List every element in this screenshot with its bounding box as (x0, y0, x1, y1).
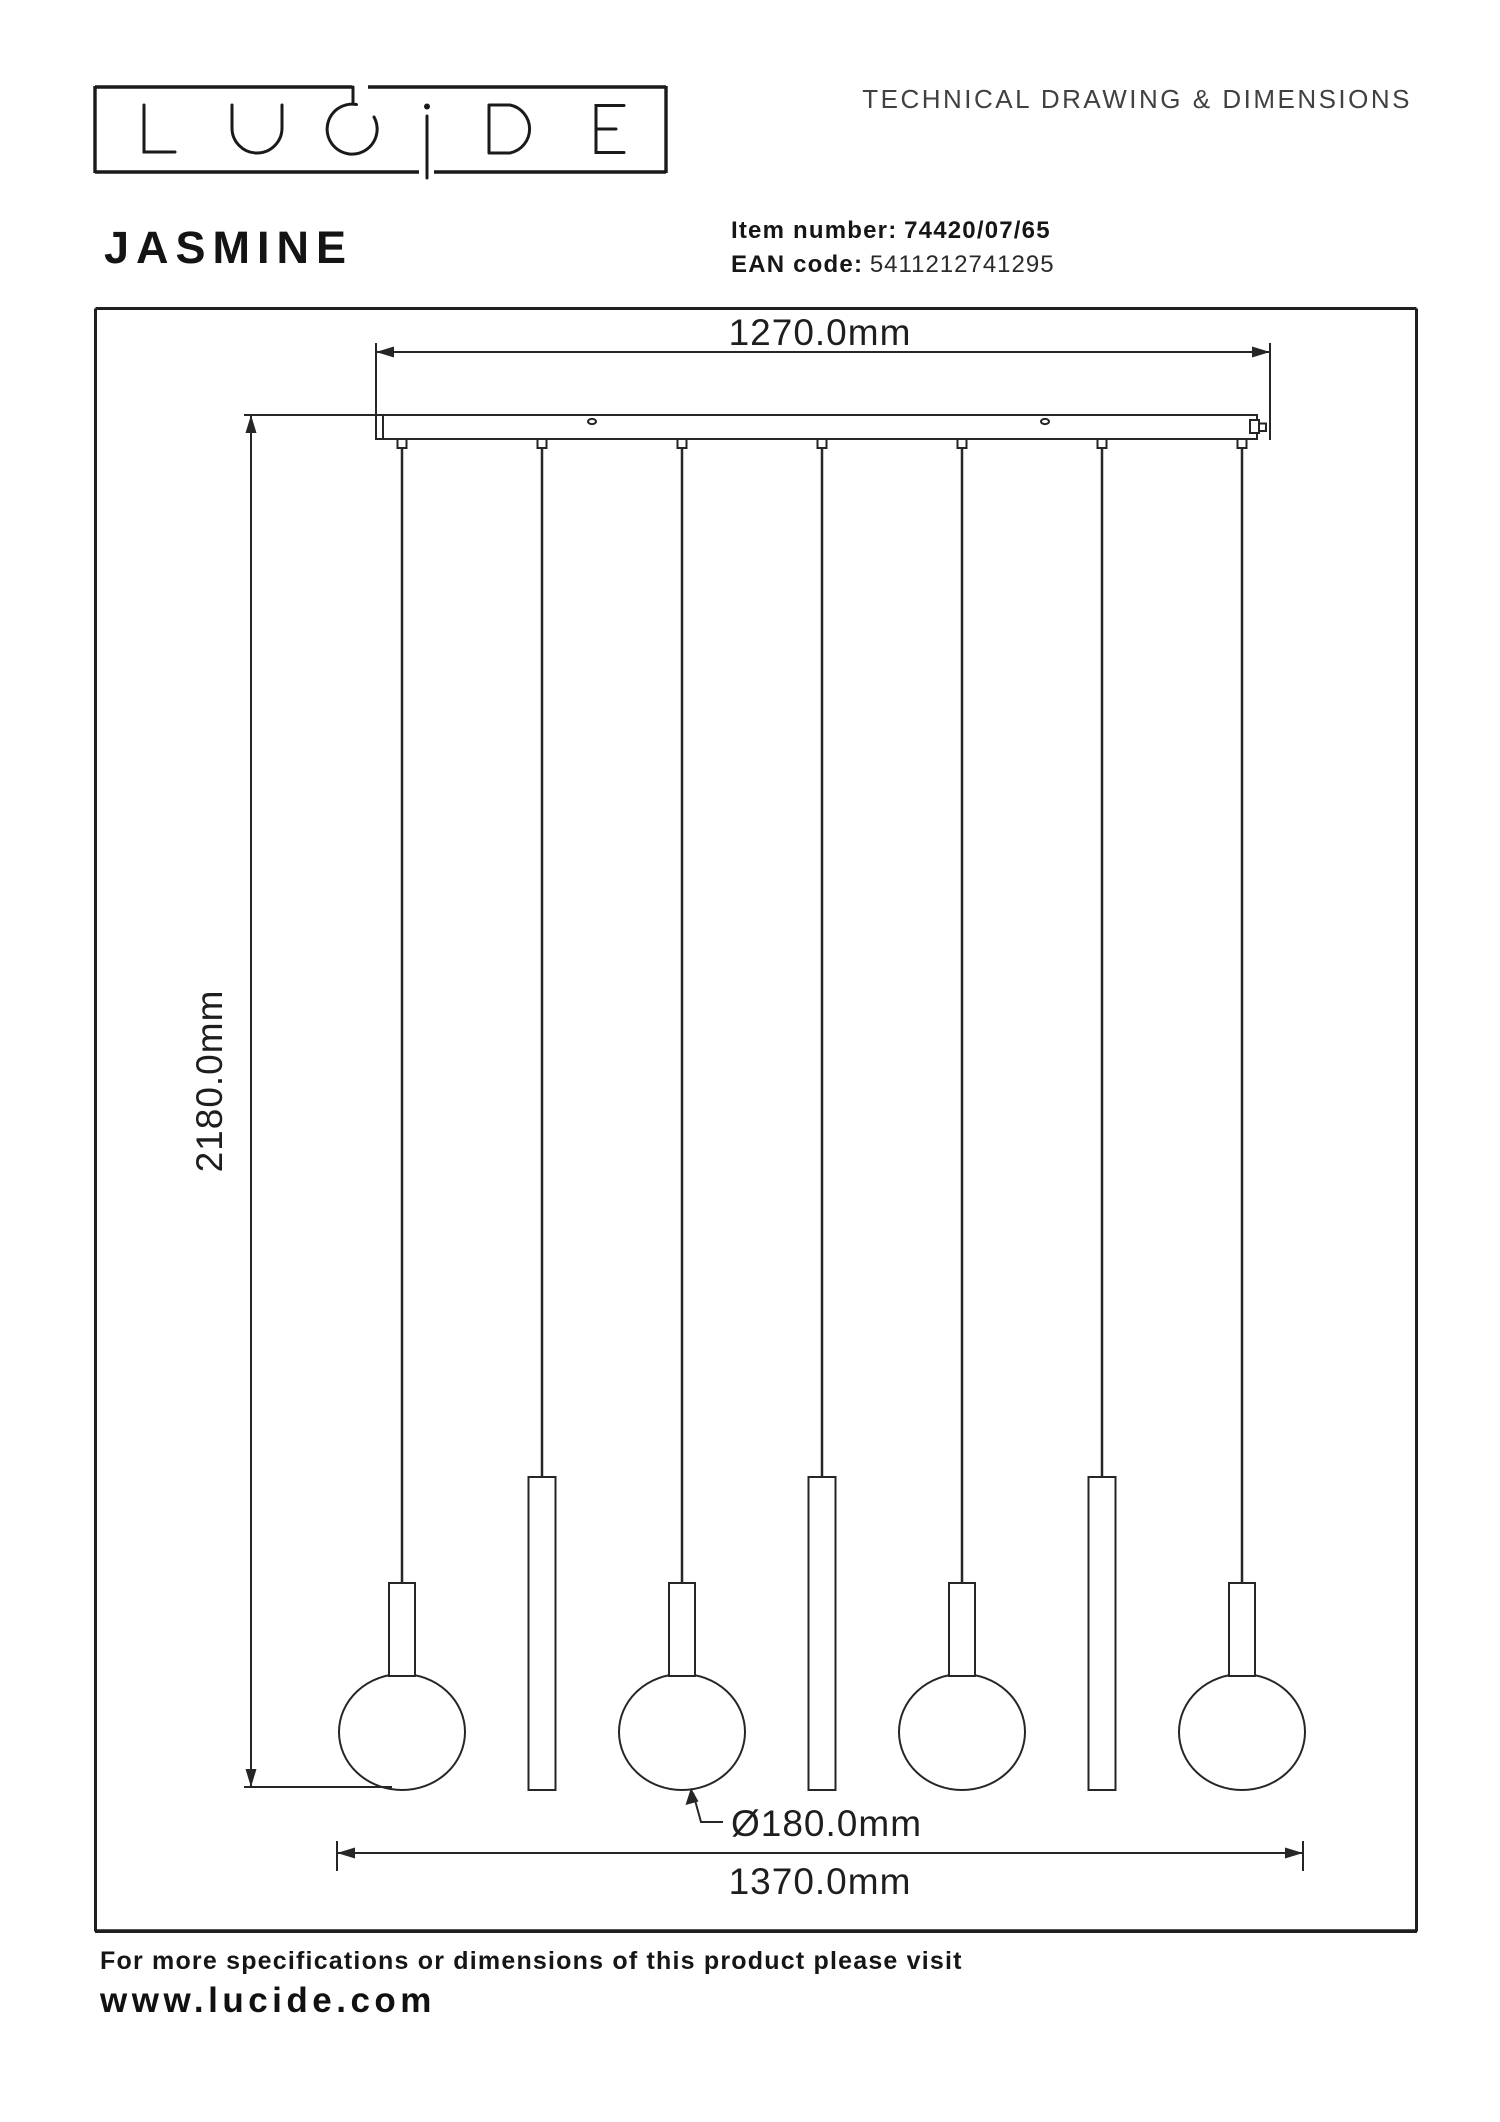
cord-connector (818, 439, 827, 448)
arrow-right-icon (1285, 1848, 1303, 1859)
globe-shade (899, 1674, 1025, 1790)
arrow-left-icon (337, 1848, 355, 1859)
technical-drawing: 1270.0mm 2180.0mm Ø180.0mm (94, 307, 1418, 1933)
globe-shade (1179, 1674, 1305, 1790)
logo-letters (144, 87, 624, 178)
socket-cylinder (669, 1583, 695, 1676)
pendant-ball (899, 439, 1025, 1790)
socket-cylinder (389, 1583, 415, 1676)
page: { "header": { "logo_text": "LUCIDE", "ti… (0, 0, 1500, 2122)
product-codes: Item number: 74420/07/65 EAN code: 54112… (731, 214, 1055, 282)
ean-label: EAN code: (731, 251, 863, 278)
pendants-group (339, 439, 1305, 1790)
cord-connector (398, 439, 407, 448)
item-number-label: Item number: (731, 217, 897, 244)
socket-cylinder (1229, 1583, 1255, 1676)
dimension-diameter: Ø180.0mm (686, 1788, 923, 1844)
product-name: JASMINE (104, 222, 353, 274)
pendant-tube (1089, 439, 1116, 1790)
arrow-left-icon (376, 347, 394, 358)
dim-bottom-width-label: 1370.0mm (729, 1861, 912, 1902)
lucide-logo (92, 84, 672, 184)
pendant-tube (809, 439, 836, 1790)
cord-connector (1238, 439, 1247, 448)
pendant-tube (529, 439, 556, 1790)
socket-cylinder (949, 1583, 975, 1676)
dim-height-label: 2180.0mm (189, 990, 230, 1173)
globe-shade (619, 1674, 745, 1790)
dimension-bottom-width: 1370.0mm (337, 1841, 1303, 1902)
cord-connector (538, 439, 547, 448)
arrow-down-icon (246, 1769, 257, 1787)
footer-website: www.lucide.com (100, 1981, 436, 2021)
globe-shade (339, 1674, 465, 1790)
dim-diameter-label: Ø180.0mm (731, 1803, 922, 1844)
item-number-row: Item number: 74420/07/65 (731, 214, 1055, 248)
pendant-ball (339, 439, 465, 1790)
dimension-height: 2180.0mm (189, 415, 392, 1787)
dim-top-width-label: 1270.0mm (729, 312, 912, 353)
tube-shade (809, 1477, 836, 1790)
ean-value: 5411212741295 (870, 251, 1055, 278)
ean-row: EAN code: 5411212741295 (731, 248, 1055, 282)
footer-note: For more specifications or dimensions of… (100, 1947, 963, 1976)
document-title: TECHNICAL DRAWING & DIMENSIONS (862, 84, 1412, 115)
item-number-value: 74420/07/65 (904, 217, 1051, 244)
pendant-ball (619, 439, 745, 1790)
ceiling-bar (376, 415, 1266, 439)
tube-shade (1089, 1477, 1116, 1790)
arrow-right-icon (1252, 347, 1270, 358)
arrow-up-icon (246, 415, 257, 433)
logo-box (95, 86, 666, 173)
cord-connector (1098, 439, 1107, 448)
cord-connector (678, 439, 687, 448)
cord-connector (958, 439, 967, 448)
pendant-ball (1179, 439, 1305, 1790)
tube-shade (529, 1477, 556, 1790)
